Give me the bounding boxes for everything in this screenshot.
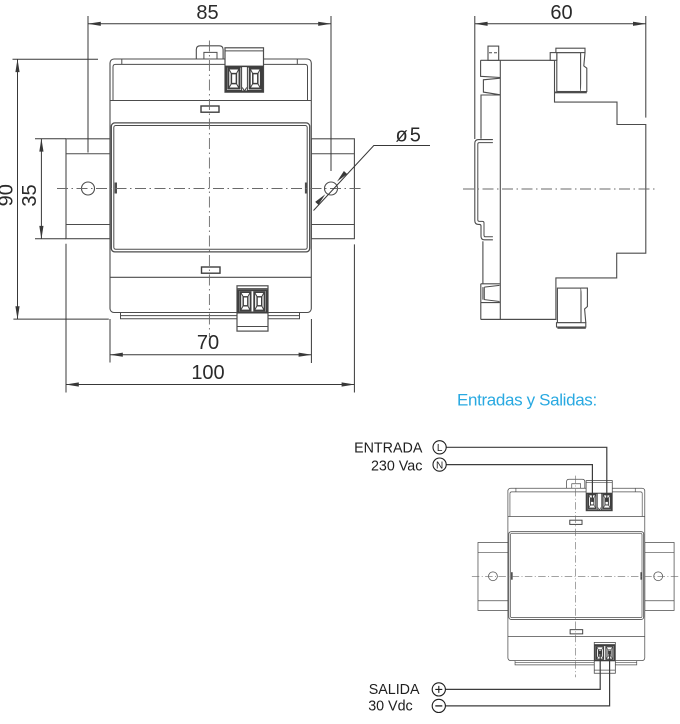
svg-text:30 Vdc: 30 Vdc xyxy=(368,699,413,715)
svg-text:230 Vac: 230 Vac xyxy=(371,458,422,474)
svg-text:ENTRADA: ENTRADA xyxy=(354,441,423,457)
svg-text:70: 70 xyxy=(197,332,219,354)
svg-text:90: 90 xyxy=(0,184,18,206)
svg-text:ø5: ø5 xyxy=(396,125,423,147)
svg-text:N: N xyxy=(436,460,443,471)
svg-text:SALIDA: SALIDA xyxy=(369,682,420,698)
svg-text:L: L xyxy=(437,443,443,454)
svg-text:60: 60 xyxy=(550,2,572,24)
svg-text:35: 35 xyxy=(19,184,41,206)
svg-text:85: 85 xyxy=(196,2,218,24)
svg-text:100: 100 xyxy=(191,362,224,384)
svg-text:Entradas y Salidas:: Entradas y Salidas: xyxy=(457,391,597,410)
